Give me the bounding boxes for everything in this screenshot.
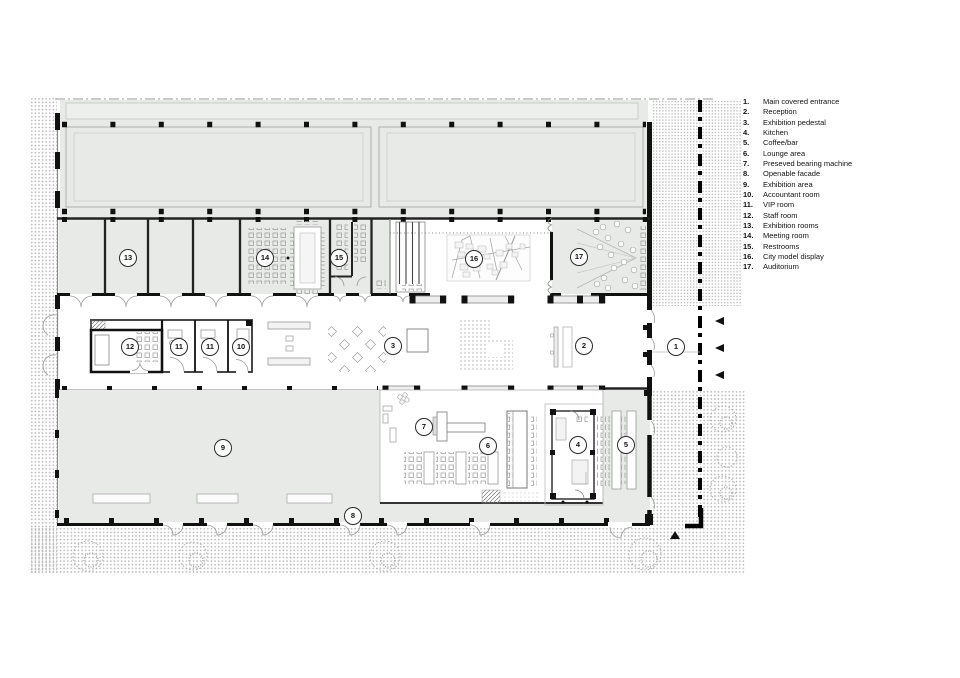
legend-item-label: Staff room <box>763 211 953 221</box>
legend-item-number: 4. <box>743 128 763 138</box>
legend-item: 16. City model display <box>743 252 953 262</box>
legend-item: 17. Auditorium <box>743 262 953 272</box>
room-marker-13: 13 <box>119 249 137 267</box>
legend-item: 10. Accountant room <box>743 190 953 200</box>
legend-item: 8. Openable facade <box>743 169 953 179</box>
legend-item-number: 11. <box>743 200 763 210</box>
legend-item-label: Accountant room <box>763 190 953 200</box>
pedestal-field <box>328 324 386 372</box>
legend-item-number: 13. <box>743 221 763 231</box>
legend-item-number: 12. <box>743 211 763 221</box>
legend-item: 5. Coffee/bar <box>743 138 953 148</box>
legend-item-number: 14. <box>743 231 763 241</box>
legend-item-number: 1. <box>743 97 763 107</box>
legend-item: 3. Exhibition pedestal <box>743 118 953 128</box>
legend-item-label: Auditorium <box>763 262 953 272</box>
legend-item-number: 3. <box>743 118 763 128</box>
legend-item-number: 9. <box>743 180 763 190</box>
entrance-arrow-icon <box>715 371 724 379</box>
west-door-swing <box>43 315 56 335</box>
legend-item: 1. Main covered entrance <box>743 97 953 107</box>
legend-item-label: Restrooms <box>763 242 953 252</box>
room-marker-9: 9 <box>214 439 232 457</box>
legend-item-number: 16. <box>743 252 763 262</box>
legend-item-label: Exhibition pedestal <box>763 118 953 128</box>
legend-item: 7. Preseved bearing machine <box>743 159 953 169</box>
legend-item-label: Openable facade <box>763 169 953 179</box>
legend-item: 6. Lounge area <box>743 149 953 159</box>
bar-stools <box>597 414 603 486</box>
colonnade-bars-north <box>410 296 606 304</box>
floor-plan-canvas: 1 2 3 4 5 6 7 8 9 10 11 11 12 13 14 15 1… <box>0 0 960 678</box>
kitchen <box>545 404 603 505</box>
legend-item-number: 2. <box>743 107 763 117</box>
entrance-arrow-icon <box>715 317 724 325</box>
west-door-swing <box>43 355 56 375</box>
room-marker-1: 1 <box>667 338 685 356</box>
legend-item: 15. Restrooms <box>743 242 953 252</box>
legend-item-label: Exhibition area <box>763 180 953 190</box>
entrance-arrow-icon <box>715 344 724 352</box>
corridor-benches <box>268 322 310 365</box>
room-marker-2: 2 <box>575 337 593 355</box>
legend-item-label: Preseved bearing machine <box>763 159 953 169</box>
south-entrance-arrow-icon <box>670 531 680 539</box>
legend-item-label: Kitchen <box>763 128 953 138</box>
legend-item-label: Reception <box>763 107 953 117</box>
legend-item: 13. Exhibition rooms <box>743 221 953 231</box>
bar-stools <box>531 414 537 486</box>
room-marker-16: 16 <box>465 250 483 268</box>
room-marker-10: 10 <box>232 338 250 356</box>
room-marker-11: 11 <box>201 338 219 356</box>
room-marker-14: 14 <box>256 249 274 267</box>
east-wall-north <box>647 122 652 295</box>
reception-desk <box>554 327 558 367</box>
legend-item-label: VIP room <box>763 200 953 210</box>
lounge-furniture <box>404 452 498 484</box>
legend-item-label: Main covered entrance <box>763 97 953 107</box>
legend-item: 14. Meeting room <box>743 231 953 241</box>
ramp-hatch <box>482 490 500 503</box>
city-model-display <box>447 235 530 281</box>
room-marker-11: 11 <box>170 338 188 356</box>
legend-item-label: Exhibition rooms <box>763 221 953 231</box>
room-marker-6: 6 <box>479 437 497 455</box>
legend: 1. Main covered entrance 2. Reception 3.… <box>743 97 953 273</box>
reception-area <box>460 320 572 372</box>
legend-item-label: Meeting room <box>763 231 953 241</box>
stair-hatch <box>91 321 105 330</box>
room-marker-3: 3 <box>384 337 402 355</box>
room-marker-7: 7 <box>415 418 433 436</box>
exhibition-tables <box>93 494 332 503</box>
legend-item-number: 10. <box>743 190 763 200</box>
room-marker-4: 4 <box>569 436 587 454</box>
corridor <box>59 295 655 394</box>
room-marker-8: 8 <box>344 507 362 525</box>
legend-item-number: 17. <box>743 262 763 272</box>
exhibition-pedestal <box>407 329 428 352</box>
room-marker-12: 12 <box>121 338 139 356</box>
entrance-door-swings <box>651 310 655 377</box>
legend-item: 12. Staff room <box>743 211 953 221</box>
legend-item-number: 7. <box>743 159 763 169</box>
west-wall <box>43 113 57 525</box>
legend-item: 11. VIP room <box>743 200 953 210</box>
main-entrance-wall <box>643 295 655 390</box>
bar-counter <box>507 411 527 488</box>
legend-item-label: City model display <box>763 252 953 262</box>
legend-item: 4. Kitchen <box>743 128 953 138</box>
office-doors <box>170 370 248 374</box>
room-marker-15: 15 <box>330 249 348 267</box>
room-marker-5: 5 <box>617 436 635 454</box>
legend-item-label: Lounge area <box>763 149 953 159</box>
staircase <box>396 222 425 292</box>
room-marker-17: 17 <box>570 248 588 266</box>
legend-item-number: 8. <box>743 169 763 179</box>
ramp-dots <box>502 491 539 503</box>
legend-item-number: 5. <box>743 138 763 148</box>
legend-item-number: 15. <box>743 242 763 252</box>
rooms-band <box>57 218 650 307</box>
legend-item-label: Coffee/bar <box>763 138 953 148</box>
legend-item: 2. Reception <box>743 107 953 117</box>
legend-item-number: 6. <box>743 149 763 159</box>
legend-item: 9. Exhibition area <box>743 180 953 190</box>
